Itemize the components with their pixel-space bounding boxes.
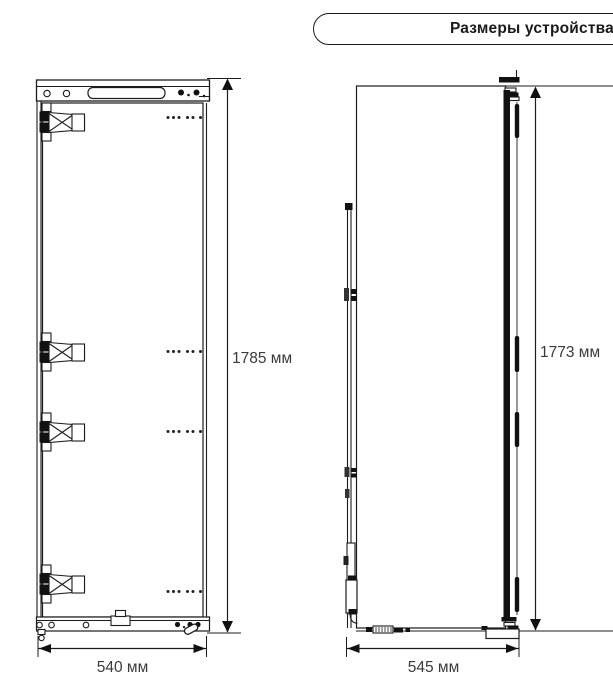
side-height-label: 1773 мм	[540, 344, 600, 362]
hinge-rail	[344, 203, 358, 628]
front-width-dimension	[38, 636, 207, 657]
dimension-drawing	[0, 0, 613, 697]
front-view-drawing	[37, 80, 210, 641]
front-foot-icon	[38, 630, 45, 635]
front-width-label: 540 мм	[55, 659, 190, 677]
device-dimensions-page: Размеры устройства	[0, 0, 613, 697]
front-height-label: 1785 мм	[232, 350, 292, 368]
side-depth-label: 545 мм	[365, 659, 502, 677]
